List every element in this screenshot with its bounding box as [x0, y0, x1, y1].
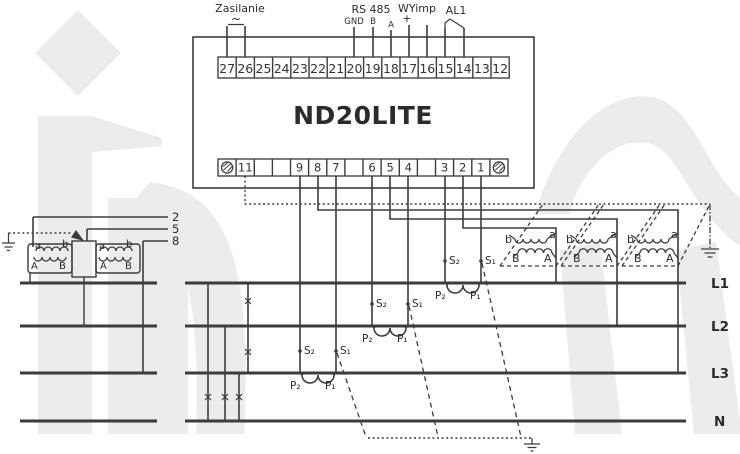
- watermark-band: [676, 242, 740, 434]
- junction-dot: [443, 259, 447, 263]
- top-terminal-wires: [227, 25, 464, 57]
- vt2-B-label: B: [125, 261, 132, 272]
- vt1-b-label: b: [62, 239, 68, 250]
- vt-A-label: A: [544, 252, 552, 265]
- vt-B-label: B: [573, 252, 581, 265]
- junction-dot: [298, 349, 302, 353]
- vt-b-label: b: [505, 233, 512, 246]
- top-wiring: Zasilanie ~ RS 485 GND B A WYimp + AL1: [215, 2, 466, 57]
- terminal-26: 26: [237, 61, 253, 76]
- junction-dot: [334, 349, 338, 353]
- junction-dot: [372, 325, 375, 328]
- wiring-diagram: L1 L2 L3 N ND20LITE 27 26 25 24 23 22 21…: [0, 0, 740, 454]
- terminal-2: 2: [459, 161, 466, 175]
- terminal-17: 17: [401, 61, 417, 76]
- vt2-A-label: A: [100, 261, 107, 272]
- vt-A-label: A: [605, 252, 613, 265]
- ct-l1: S₂ S₁ P₂ P₁: [435, 255, 496, 302]
- terminal-14: 14: [456, 61, 472, 76]
- vt-A-label: A: [666, 252, 674, 265]
- watermark-wave: [535, 96, 740, 246]
- vt-a-label: a: [549, 228, 556, 241]
- junction-dot: [404, 325, 407, 328]
- ct-earthing-dashed-wires: [337, 263, 521, 437]
- terminal-6: 6: [368, 161, 375, 175]
- ct-l3: S₂ S₁ P₂ P₁: [290, 345, 351, 392]
- terminal-4: 4: [405, 161, 412, 175]
- terminal-19: 19: [365, 61, 381, 76]
- terminal-15: 15: [438, 61, 454, 76]
- ct-p1-label: P₁: [470, 290, 481, 302]
- ct-p1-label: P₁: [397, 333, 408, 345]
- rs485-label: RS 485: [351, 3, 390, 16]
- junction-dot: [300, 372, 303, 375]
- watermark-band: [560, 242, 622, 434]
- tap-label-8: 8: [172, 234, 179, 248]
- device: ND20LITE 27 26 25 24 23 22 21 20 19 18 1…: [193, 37, 534, 188]
- diagram-canvas: L1 L2 L3 N ND20LITE 27 26 25 24 23 22 21…: [0, 0, 740, 454]
- terminal-7: 7: [332, 161, 339, 175]
- vt-b-label: b: [566, 233, 573, 246]
- terminal-20: 20: [347, 61, 363, 76]
- terminal-5: 5: [387, 161, 394, 175]
- junction-dot: [406, 302, 410, 306]
- bus-label-n: N: [714, 414, 725, 430]
- terminal-21: 21: [328, 61, 344, 76]
- rs485-gnd-label: GND: [344, 17, 364, 27]
- ct-p2-label: P₂: [362, 333, 373, 345]
- ct-s2-label: S₂: [449, 255, 460, 267]
- ct-p2-label: P₂: [290, 380, 301, 392]
- vt1-A-label: A: [31, 261, 38, 272]
- terminal-16: 16: [419, 61, 435, 76]
- device-name: ND20LITE: [293, 101, 433, 130]
- junction-dot: [370, 302, 374, 306]
- junction-dot: [479, 259, 483, 263]
- bottom-wiring: [245, 176, 710, 373]
- ct-s1-label: S₁: [412, 298, 423, 310]
- junction-dot: [332, 372, 335, 375]
- terminal-12: 12: [492, 61, 508, 76]
- terminal-3: 3: [441, 161, 448, 175]
- vt2-b-label: b: [126, 239, 132, 250]
- terminal-22: 22: [310, 61, 326, 76]
- terminal-18: 18: [383, 61, 399, 76]
- vt1-a-label: a: [35, 241, 41, 252]
- terminal-25: 25: [256, 61, 272, 76]
- neutral-dotted-wire: [245, 176, 710, 204]
- ct-p1-label: P₁: [325, 380, 336, 392]
- relay-contact-icon: [445, 19, 464, 28]
- terminal-13: 13: [474, 61, 490, 76]
- ct-s1-label: S₁: [340, 345, 351, 357]
- terminal-23: 23: [292, 61, 308, 76]
- terminal-8: 8: [314, 161, 321, 175]
- watermark-diamond: [35, 10, 121, 96]
- junction-dot: [445, 282, 448, 285]
- pulse-plus-label: +: [402, 12, 411, 25]
- ct-l2: S₂ S₁ P₂ P₁: [362, 298, 423, 345]
- junction-dot: [477, 282, 480, 285]
- terminal-9: 9: [296, 161, 303, 175]
- right-vt-2: b a B A: [561, 204, 660, 266]
- vt-b-label: b: [627, 233, 634, 246]
- alarm-label: AL1: [446, 4, 467, 17]
- vt-a-label: a: [610, 228, 617, 241]
- bus-label-l2: L2: [711, 319, 729, 335]
- rs485-a-label: A: [388, 21, 394, 31]
- terminal-27: 27: [219, 61, 235, 76]
- bus-label-l3: L3: [711, 366, 729, 382]
- vt2-a-label: a: [99, 241, 105, 252]
- ct-s2-label: S₂: [304, 345, 315, 357]
- rs485-b-label: B: [370, 17, 376, 27]
- ct-s1-label: S₁: [485, 255, 496, 267]
- terminal-11: 11: [238, 161, 253, 175]
- vt1-B-label: B: [59, 261, 66, 272]
- vt-a-label: a: [671, 228, 678, 241]
- vt-B-label: B: [512, 252, 520, 265]
- terminal-1: 1: [477, 161, 484, 175]
- vt-B-label: B: [634, 252, 642, 265]
- bus-label-l1: L1: [711, 276, 729, 292]
- ct-s2-label: S₂: [376, 298, 387, 310]
- ct-p2-label: P₂: [435, 290, 446, 302]
- terminal-24: 24: [274, 61, 290, 76]
- ground-icon-bottom: [368, 438, 540, 451]
